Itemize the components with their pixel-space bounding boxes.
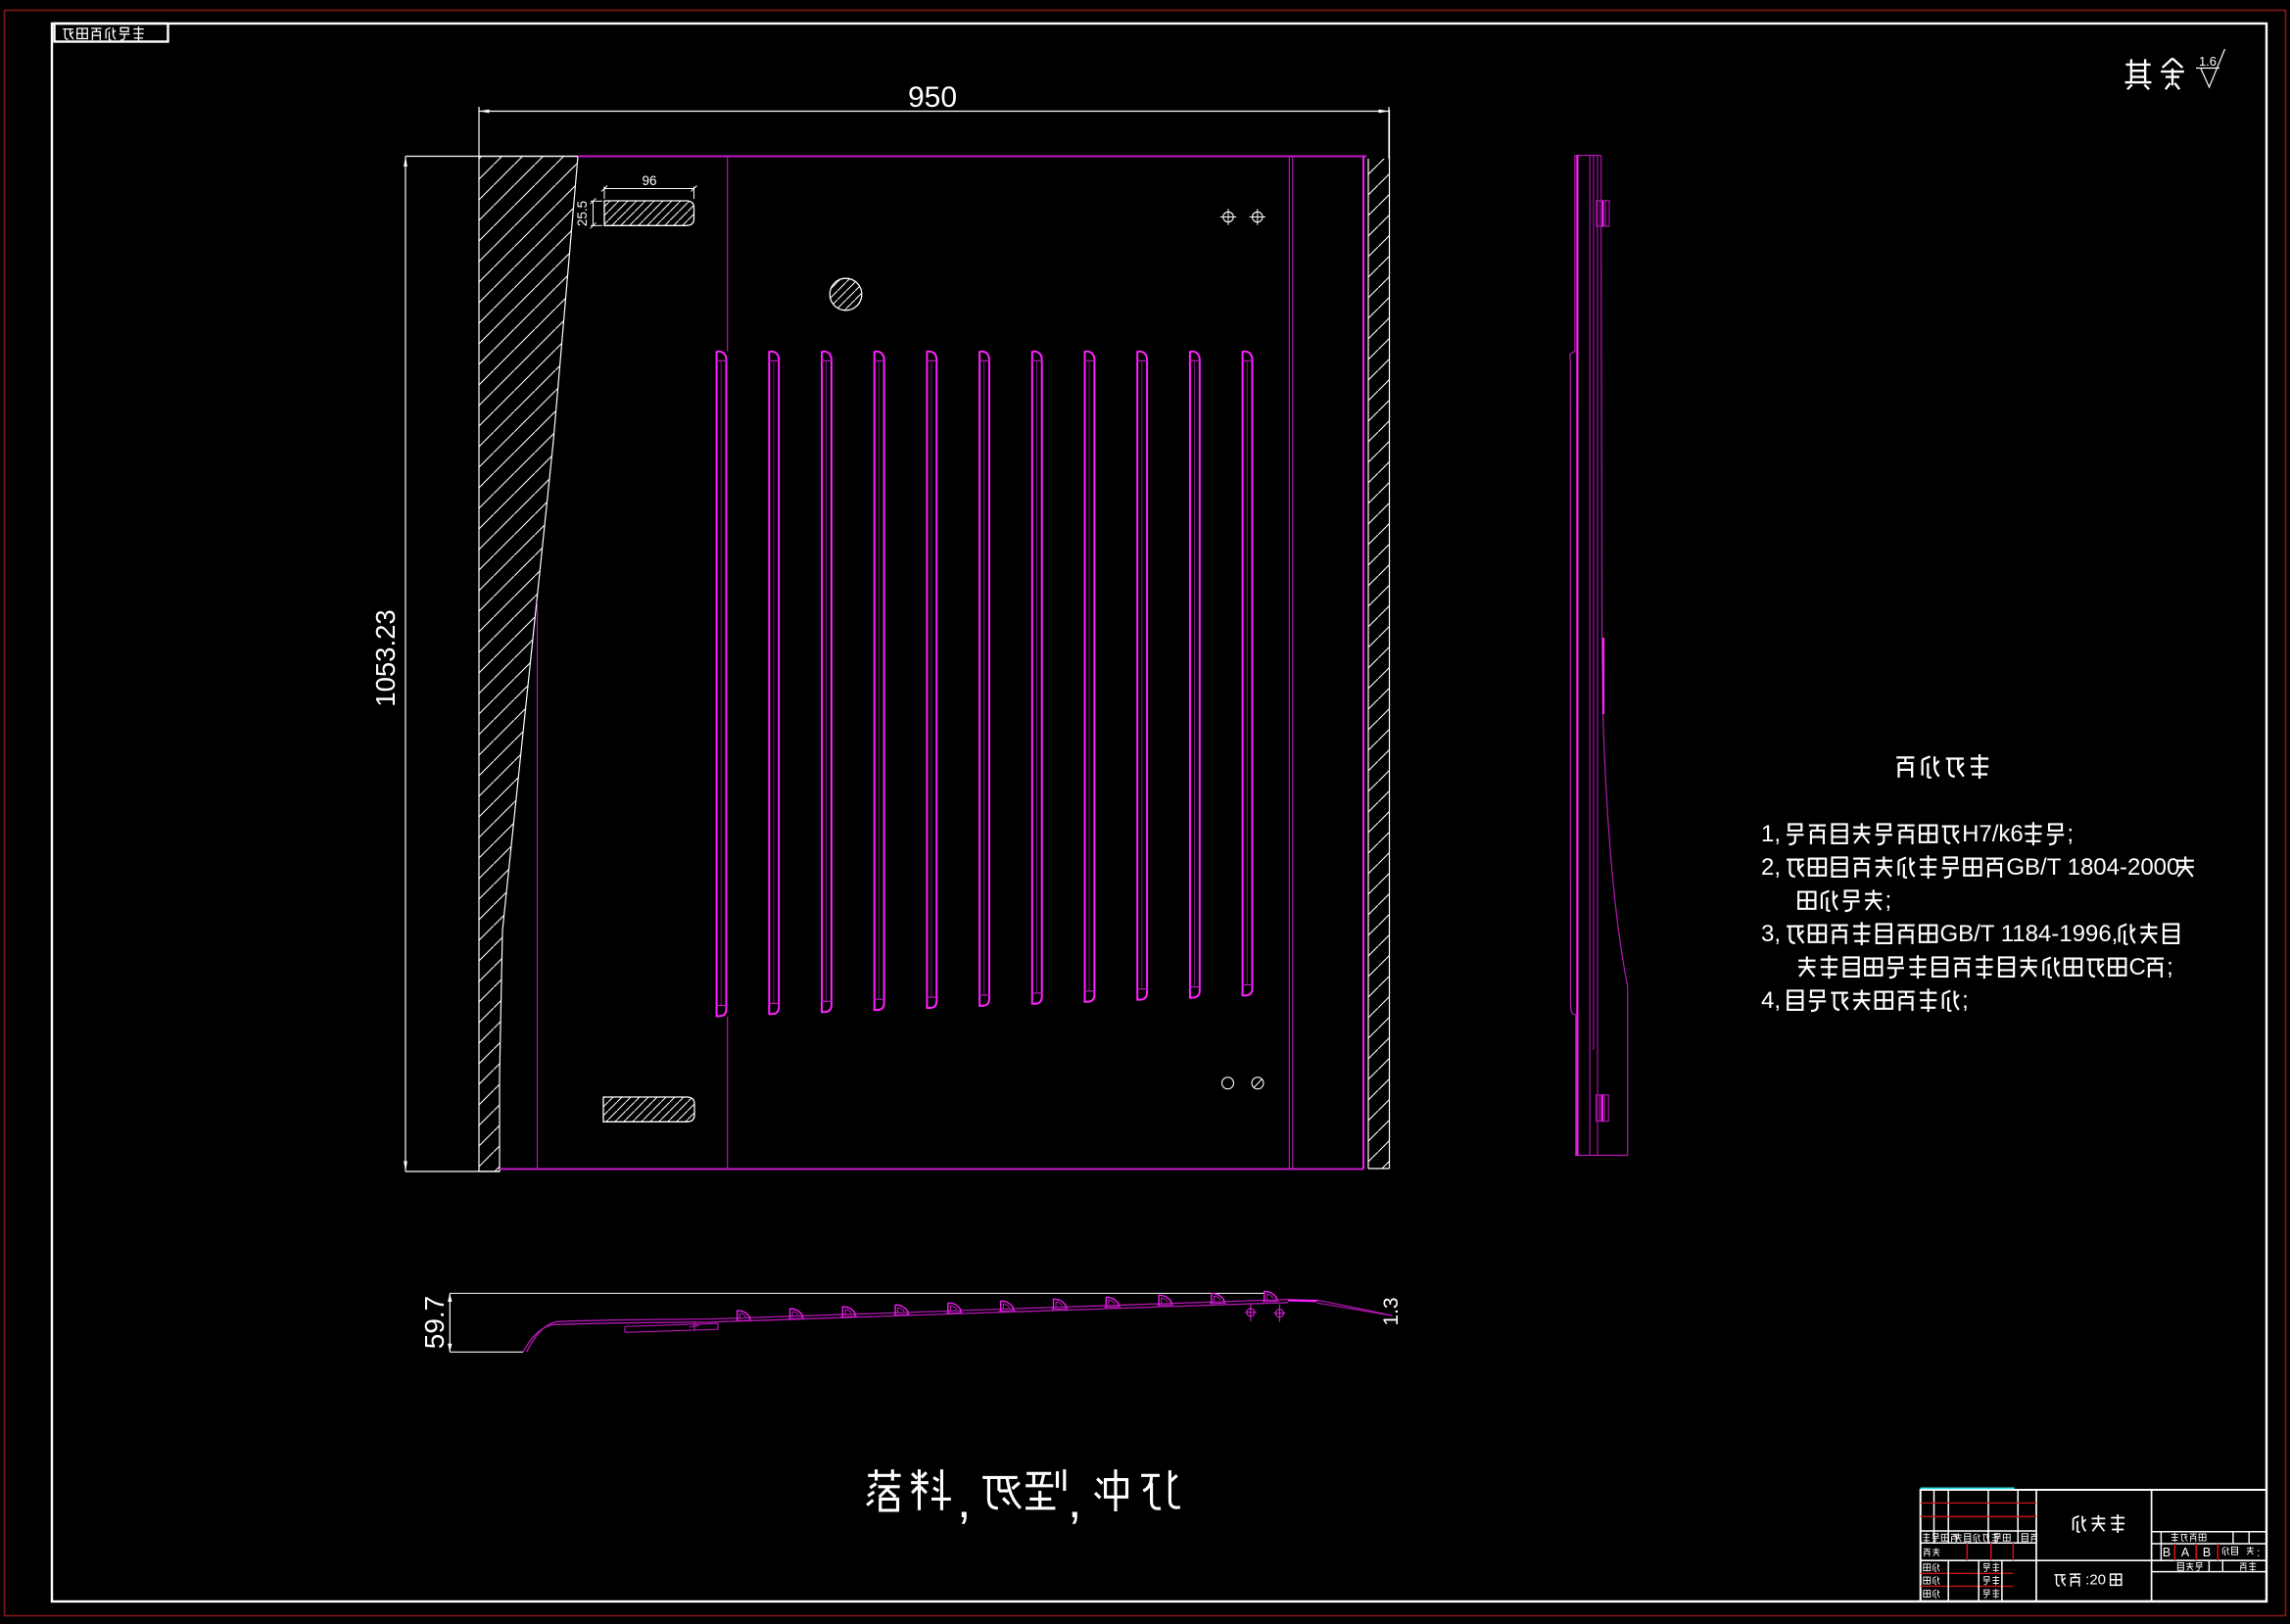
svg-text:,: , <box>1068 1472 1081 1529</box>
svg-text:;: ; <box>2067 821 2074 847</box>
svg-text:A: A <box>2181 1546 2190 1559</box>
svg-text:;: ; <box>1885 887 1892 914</box>
svg-text:1053.23: 1053.23 <box>370 609 401 706</box>
svg-text:GB/T 1184-1996,: GB/T 1184-1996, <box>1939 921 2118 947</box>
svg-text:1,: 1, <box>1761 821 1781 847</box>
svg-text:59.7: 59.7 <box>419 1296 450 1350</box>
svg-text:25.5: 25.5 <box>575 201 590 226</box>
svg-text:;: ; <box>2167 954 2173 980</box>
svg-text:950: 950 <box>908 81 957 114</box>
svg-text:4,: 4, <box>1761 987 1781 1014</box>
svg-text:3,: 3, <box>1761 921 1781 947</box>
svg-text:1.3: 1.3 <box>1380 1297 1403 1325</box>
svg-text:GB/T 1804-2000: GB/T 1804-2000 <box>2006 854 2179 881</box>
svg-text:1.6: 1.6 <box>2199 54 2217 69</box>
svg-text:96: 96 <box>642 173 656 188</box>
svg-text::: : <box>2257 1548 2260 1559</box>
svg-text:C: C <box>2129 954 2146 980</box>
svg-text::20: :20 <box>2085 1572 2106 1589</box>
svg-text:;: ; <box>1962 987 1969 1014</box>
svg-text:B: B <box>2203 1546 2211 1559</box>
svg-text:2,: 2, <box>1761 854 1781 881</box>
svg-text:,: , <box>957 1472 971 1529</box>
svg-text:H7/k6: H7/k6 <box>1962 821 2024 847</box>
svg-text:B: B <box>2163 1546 2171 1559</box>
